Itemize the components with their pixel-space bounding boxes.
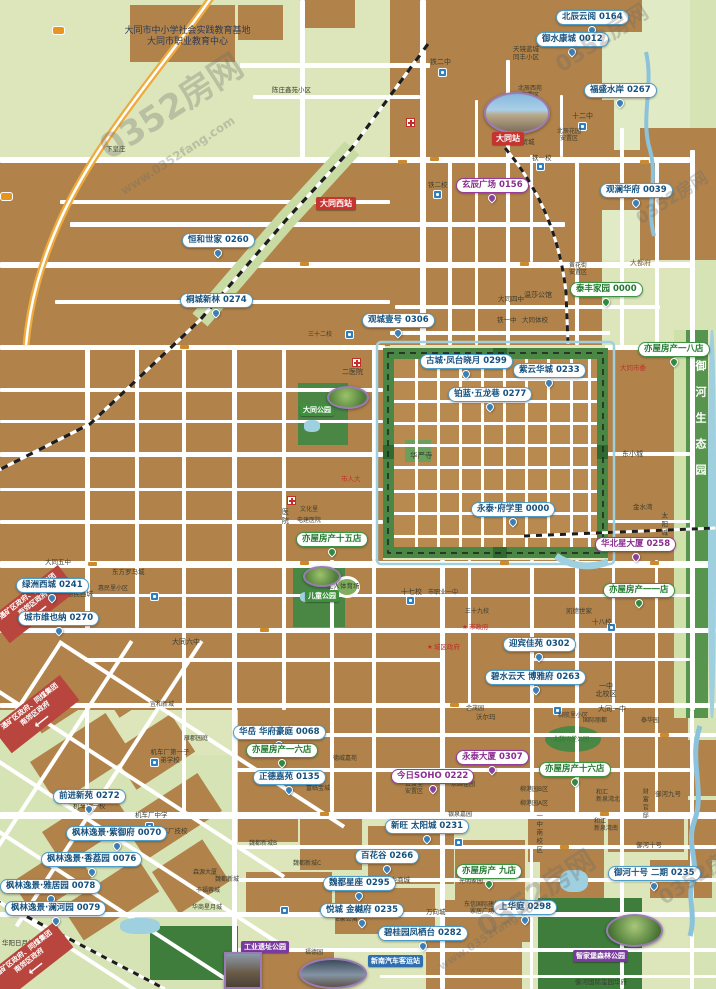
listing-pill[interactable]: 亦屋房产 九店 bbox=[456, 864, 522, 879]
place-label: 北辰花园 安置区 bbox=[552, 128, 586, 142]
place-label: 市人大 bbox=[341, 476, 361, 484]
park-label: 儿童公园 bbox=[305, 590, 339, 602]
listing-pill[interactable]: 新旺 太阳城 0231 bbox=[385, 819, 469, 834]
listing-label[interactable]: 泰丰家园 0000 bbox=[570, 276, 643, 297]
listing-label[interactable]: 御河十号 二期 0235 bbox=[608, 860, 701, 881]
place-label: 金茂园 bbox=[466, 705, 484, 712]
place-label: 机车厂中学 bbox=[135, 812, 168, 820]
place-label: 惠民里小区 bbox=[98, 585, 128, 592]
listing-pill[interactable]: 铂蓝·五龙巷 0277 bbox=[448, 387, 532, 402]
map-pin-icon bbox=[485, 401, 496, 412]
map-pin-icon bbox=[487, 764, 498, 775]
place-label: 泰华园 bbox=[641, 717, 659, 724]
place-label: 光明家园 bbox=[459, 878, 483, 885]
map-pin-icon bbox=[421, 833, 432, 844]
map-pin-icon bbox=[544, 377, 555, 388]
place-label: 华严寺 bbox=[410, 451, 433, 460]
listing-label[interactable]: 御水康城 0012 bbox=[536, 26, 609, 47]
map-pin-icon bbox=[284, 784, 295, 795]
park-label: 智家堡森林公园 bbox=[573, 950, 628, 962]
photo-thumbnail-building bbox=[299, 958, 367, 989]
photo-thumbnail-park bbox=[327, 386, 369, 409]
labels-layer: 北辰云阅 0164御水康城 0012福盛水岸 0267玄辰广场 0156观澜华府… bbox=[0, 0, 716, 989]
place-label: 一中 北校区 bbox=[590, 682, 622, 699]
listing-label[interactable]: 今日SOHO 0222 bbox=[391, 763, 474, 784]
map-pin-icon bbox=[630, 551, 641, 562]
listing-label[interactable]: 城市维也纳 0270 bbox=[18, 605, 99, 626]
road-name-plate bbox=[650, 561, 659, 565]
road-name-plate bbox=[660, 733, 669, 737]
place-label: 森源大厦 bbox=[193, 869, 217, 876]
map-pin-icon bbox=[393, 327, 404, 338]
listing-label[interactable]: 玄辰广场 0156 bbox=[456, 172, 529, 193]
agency-store-label[interactable]: 亦屋房产 九店 bbox=[456, 858, 522, 879]
place-label: 华商星月城 bbox=[192, 904, 222, 911]
place-label: 北魏明堂公园 bbox=[553, 736, 589, 743]
agency-store-label[interactable]: 亦屋房产十六店 bbox=[539, 756, 611, 777]
place-label: 魏都新城 bbox=[215, 876, 239, 883]
eco-park-edge-label: 御河生态园 bbox=[692, 360, 708, 660]
place-label: 东方罗马城 bbox=[112, 569, 145, 577]
railway-station-label: 大同西站 bbox=[316, 197, 356, 210]
left-arrow-icon: ⟵ bbox=[5, 943, 66, 989]
listing-pill[interactable]: 福盛水岸 0267 bbox=[584, 83, 657, 98]
listing-pill[interactable]: 北辰云阅 0164 bbox=[556, 10, 629, 25]
listing-label[interactable]: 枫林逸景·香荔园 0076 bbox=[41, 846, 142, 867]
map-pin-icon bbox=[483, 878, 494, 889]
map-pin-icon bbox=[649, 880, 660, 891]
photo-thumbnail-station bbox=[484, 92, 550, 134]
place-label: 卡福蓉城 bbox=[196, 887, 220, 894]
road-name-plate bbox=[260, 628, 269, 632]
place-label: 御河九号 bbox=[655, 791, 681, 799]
listing-pill[interactable]: 今日SOHO 0222 bbox=[391, 769, 474, 784]
place-label: ★市政府 bbox=[462, 624, 488, 632]
listing-pill[interactable]: 枫林逸景·雅居园 0078 bbox=[0, 879, 101, 894]
map-pin-icon bbox=[615, 97, 626, 108]
place-label: 黄花街 安置区 bbox=[563, 262, 593, 276]
listing-pill[interactable]: 桐城新林 0274 bbox=[180, 293, 253, 308]
watermark: www.0352fang.com bbox=[118, 113, 237, 197]
place-label: 御河国际玺园华府 bbox=[575, 979, 627, 987]
listing-pill[interactable]: 上华庭 0298 bbox=[493, 900, 557, 915]
road-name-plate bbox=[398, 160, 407, 164]
place-label: 魏都新城C bbox=[293, 860, 321, 867]
road-name-plate bbox=[180, 345, 189, 349]
agency-store-label[interactable]: 亦屋房产一八店 bbox=[638, 336, 710, 357]
road-name-plate bbox=[520, 262, 529, 266]
listing-label[interactable]: 永泰·府学里 0000 bbox=[471, 496, 555, 517]
agency-store-label[interactable]: 亦屋房产一一店 bbox=[603, 577, 675, 598]
map-pin-icon bbox=[569, 776, 580, 787]
listing-pill[interactable]: 枫林逸景·澜河园 0079 bbox=[5, 901, 106, 916]
road-name-plate bbox=[300, 561, 309, 565]
listing-label[interactable]: 北辰云阅 0164 bbox=[556, 4, 629, 25]
hospital-icon bbox=[352, 358, 361, 367]
listing-label[interactable]: 碧水云天 博雅府 0263 bbox=[485, 664, 586, 685]
road-name-plate bbox=[500, 561, 509, 565]
map-pin-icon bbox=[601, 296, 612, 307]
place-label: 沃尔玛 bbox=[476, 714, 496, 722]
place-label: 二医院 bbox=[342, 368, 363, 376]
place-label: 魏都新城B bbox=[249, 840, 277, 847]
map-pin-icon bbox=[534, 651, 545, 662]
map-pin-icon bbox=[326, 546, 337, 557]
place-label: 大同体校 bbox=[522, 317, 548, 325]
listing-label[interactable]: 福盛水岸 0267 bbox=[584, 77, 657, 98]
listing-label[interactable]: 百花谷 0266 bbox=[355, 843, 419, 864]
place-label: 十七校 bbox=[401, 588, 422, 596]
gov-star-icon: ★ bbox=[427, 643, 433, 651]
road-name-plate bbox=[600, 812, 609, 816]
place-label: 财富官邸 bbox=[641, 788, 648, 820]
highway-shield-icon bbox=[52, 26, 65, 35]
place-label: 铁二中 bbox=[430, 58, 451, 66]
place-label: 医院 bbox=[281, 508, 289, 526]
place-label: 铁二校 bbox=[428, 182, 448, 190]
place-label: 御河十号 bbox=[636, 842, 662, 850]
listing-label[interactable]: 绿洲西城 0241 bbox=[16, 572, 89, 593]
photo-thumbnail-street bbox=[224, 952, 262, 989]
listing-label[interactable]: 恒和世家 0260 bbox=[182, 227, 255, 248]
school-icon bbox=[454, 838, 463, 847]
map-pin-icon bbox=[211, 307, 222, 318]
place-label: 三十二校 bbox=[308, 331, 332, 338]
school-icon bbox=[345, 330, 354, 339]
road-name-plate bbox=[320, 812, 329, 816]
direction-banner: 通矿区政府、同煤集团 南郊区政府⟵ bbox=[0, 922, 74, 989]
listing-pill[interactable]: 观城壹号 0306 bbox=[362, 313, 435, 328]
place-label: 天镜蓝城 同丰小区 bbox=[505, 46, 547, 62]
listing-pill[interactable]: 泰丰家园 0000 bbox=[570, 282, 643, 297]
agency-store-label[interactable]: 亦屋房产十五店 bbox=[296, 526, 368, 547]
place-label: 大同市中小学社会实践教育基地 大同市职业教育中心 bbox=[100, 26, 275, 48]
listing-pill[interactable]: 亦屋房产一一店 bbox=[603, 583, 675, 598]
map-pin-icon bbox=[668, 356, 679, 367]
place-label: 大同四中 bbox=[498, 296, 524, 304]
listing-pill[interactable]: 亦屋房产一六店 bbox=[246, 743, 318, 758]
listing-pill[interactable]: 华北星大厦 0258 bbox=[595, 537, 676, 552]
listing-pill[interactable]: 前进新苑 0272 bbox=[53, 789, 126, 804]
place-label: ★城区政府 bbox=[427, 644, 460, 652]
place-label: 和江 新泉湾南 bbox=[594, 818, 618, 832]
listing-label[interactable]: 华北星大厦 0258 bbox=[595, 531, 676, 552]
listing-label[interactable]: 前进新苑 0272 bbox=[53, 783, 126, 804]
place-label: 金水湾 bbox=[633, 504, 653, 512]
listing-label[interactable]: 悦城 金樾府 0235 bbox=[320, 897, 404, 918]
road-name-plate bbox=[300, 262, 309, 266]
road-name-plate bbox=[560, 845, 569, 849]
listing-label[interactable]: 碧桂园凤栖台 0282 bbox=[378, 920, 468, 941]
listing-label[interactable]: 紫云华城 0233 bbox=[513, 357, 586, 378]
map-pin-icon bbox=[487, 192, 498, 203]
railway-station-label: 大同站 bbox=[492, 132, 524, 145]
place-label: 机车厂第一子 弟学校 bbox=[146, 749, 194, 765]
map-pin-icon bbox=[461, 368, 472, 379]
park-label: 大同公园 bbox=[300, 404, 334, 416]
park-label: 新南汽车客运站 bbox=[368, 955, 423, 967]
highway-shield-icon bbox=[0, 192, 13, 201]
road-name-plate bbox=[450, 703, 459, 707]
listing-label[interactable]: 铂蓝·五龙巷 0277 bbox=[448, 381, 532, 402]
listing-pill[interactable]: 碧水云天 博雅府 0263 bbox=[485, 670, 586, 685]
place-label: 下皇庄 bbox=[106, 146, 126, 154]
listing-pill[interactable]: 紫云华城 0233 bbox=[513, 363, 586, 378]
place-label: 市职业一中 bbox=[428, 589, 458, 596]
school-icon bbox=[150, 592, 159, 601]
place-label: 电建医院 bbox=[297, 517, 321, 524]
listing-pill[interactable]: 百花谷 0266 bbox=[355, 849, 419, 864]
place-label: 温莎公馆 bbox=[524, 291, 552, 299]
listing-label[interactable]: 上华庭 0298 bbox=[493, 894, 557, 915]
place-label: 一中南校区 bbox=[534, 812, 542, 855]
listing-label[interactable]: 魏都星座 0295 bbox=[323, 870, 396, 891]
hospital-icon bbox=[287, 496, 296, 505]
place-label: 铁一中 bbox=[497, 317, 517, 325]
gov-star-icon: ★ bbox=[462, 623, 468, 631]
direction-banner: 通矿区政府、同煤集团 南郊区政府⟵ bbox=[0, 675, 80, 753]
listing-pill[interactable]: 亦屋房产十六店 bbox=[539, 762, 611, 777]
place-label: 德威嘉苑 bbox=[333, 755, 357, 762]
map-pin-icon bbox=[427, 783, 438, 794]
listing-pill[interactable]: 城市维也纳 0270 bbox=[18, 611, 99, 626]
listing-label[interactable]: 枫林逸景·雅居园 0078 bbox=[0, 873, 101, 894]
listing-pill[interactable]: 碧桂园凤栖台 0282 bbox=[378, 926, 468, 941]
map-pin-icon bbox=[213, 247, 224, 258]
place-label: 富临宝城 bbox=[306, 785, 330, 792]
photo-thumbnail-park2 bbox=[606, 914, 663, 947]
place-label: 雁郡园庭 bbox=[184, 735, 208, 742]
place-label: 柳港园B区 bbox=[520, 786, 548, 793]
place-label: 铁一校 bbox=[532, 155, 552, 163]
place-label: 福德园 bbox=[305, 949, 323, 956]
listing-pill[interactable]: 枫林逸景·紫御府 0070 bbox=[66, 826, 167, 841]
map-pin-icon bbox=[519, 914, 530, 925]
listing-pill[interactable]: 悦城 金樾府 0235 bbox=[320, 903, 404, 918]
school-icon bbox=[406, 596, 415, 605]
listing-pill[interactable]: 亦屋房产十五店 bbox=[296, 532, 368, 547]
map-pin-icon bbox=[631, 197, 642, 208]
place-label: 万向城 bbox=[426, 909, 446, 917]
watermark: 0352房网 bbox=[468, 839, 602, 945]
road-name-plate bbox=[640, 160, 649, 164]
agency-store-label[interactable]: 亦屋房产一六店 bbox=[246, 737, 318, 758]
school-icon bbox=[536, 162, 545, 171]
photo-thumbnail-park bbox=[303, 566, 341, 587]
map-pin-icon bbox=[417, 940, 428, 951]
place-label: 大都府 bbox=[630, 259, 651, 267]
listing-pill[interactable]: 绿洲西城 0241 bbox=[16, 578, 89, 593]
map-pin-icon bbox=[567, 46, 578, 57]
place-label: 三十九校 bbox=[465, 608, 489, 615]
map-pin-icon bbox=[530, 684, 541, 695]
listing-label[interactable]: 永泰大厦 0307 bbox=[456, 744, 529, 765]
road-name-plate bbox=[430, 157, 439, 161]
listing-pill[interactable]: 御水康城 0012 bbox=[536, 32, 609, 47]
map-pin-icon bbox=[53, 625, 64, 636]
listing-pill[interactable]: 观澜华府 0039 bbox=[600, 183, 673, 198]
place-label: 文化里 bbox=[300, 506, 318, 513]
listing-label[interactable]: 枫林逸景·澜河园 0079 bbox=[5, 895, 106, 916]
place-label: 和汇 新泉湾北 bbox=[596, 789, 620, 803]
map-pin-icon bbox=[508, 516, 519, 527]
place-label: 大同市委 bbox=[620, 365, 646, 373]
listing-label[interactable]: 迎宾佳苑 0302 bbox=[503, 631, 576, 652]
place-label: 东小城 bbox=[622, 450, 643, 458]
place-label: 柳港园A区 bbox=[520, 800, 548, 807]
school-icon bbox=[438, 68, 447, 77]
listing-label[interactable]: 古城·凤台晓月 0299 bbox=[420, 348, 513, 369]
listing-pill[interactable]: 玄辰广场 0156 bbox=[456, 178, 529, 193]
map-pin-icon bbox=[633, 597, 644, 608]
place-label: 大同六中 bbox=[172, 638, 200, 646]
hospital-icon bbox=[406, 118, 415, 127]
place-label: 十二中 bbox=[572, 112, 593, 120]
listing-label[interactable]: 正德嘉苑 0135 bbox=[253, 764, 326, 785]
listing-pill[interactable]: 御河十号 二期 0235 bbox=[608, 866, 701, 881]
listing-pill[interactable]: 恒和世家 0260 bbox=[182, 233, 255, 248]
listing-pill[interactable]: 魏都星座 0295 bbox=[323, 876, 396, 891]
listing-label[interactable]: 新旺 太阳城 0231 bbox=[385, 813, 469, 834]
listing-label[interactable]: 桐城新林 0274 bbox=[180, 287, 253, 308]
place-label: 十八校 bbox=[592, 619, 612, 627]
place-label: 凯德世家 bbox=[566, 608, 592, 616]
place-label: 柳航里小区 bbox=[558, 712, 588, 719]
listing-pill[interactable]: 枫林逸景·香荔园 0076 bbox=[41, 852, 142, 867]
listing-label[interactable]: 观澜华府 0039 bbox=[600, 177, 673, 198]
school-icon bbox=[433, 190, 442, 199]
listing-label[interactable]: 枫林逸景·紫御府 0070 bbox=[66, 820, 167, 841]
datong-city-map: 北辰云阅 0164御水康城 0012福盛水岸 0267玄辰广场 0156观澜华府… bbox=[0, 0, 716, 989]
road-name-plate bbox=[88, 562, 97, 566]
place-label: 陈庄鑫苑小区 bbox=[272, 87, 311, 95]
left-arrow-icon: ⟵ bbox=[11, 696, 72, 747]
listing-pill[interactable]: 古城·凤台晓月 0299 bbox=[420, 354, 513, 369]
place-label: 宜和新城 bbox=[150, 701, 174, 708]
listing-pill[interactable]: 正德嘉苑 0135 bbox=[253, 770, 326, 785]
listing-pill[interactable]: 亦屋房产一八店 bbox=[638, 342, 710, 357]
place-label: 大同一中 bbox=[598, 705, 626, 713]
listing-label[interactable]: 观城壹号 0306 bbox=[362, 307, 435, 328]
listing-pill[interactable]: 迎宾佳苑 0302 bbox=[503, 637, 576, 652]
listing-pill[interactable]: 永泰·府学里 0000 bbox=[471, 502, 555, 517]
map-pin-icon bbox=[356, 917, 367, 928]
school-icon bbox=[280, 906, 289, 915]
